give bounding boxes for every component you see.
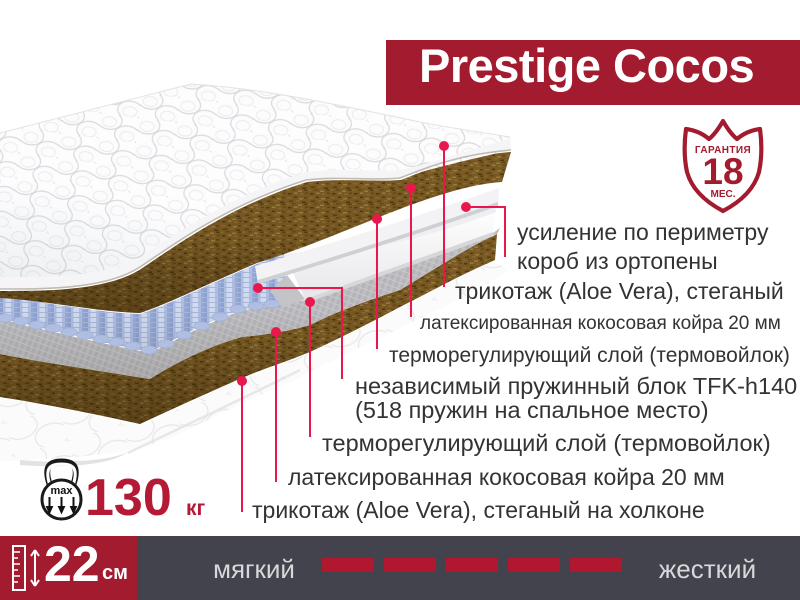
svg-text:МЕС.: МЕС. <box>711 189 736 200</box>
svg-text:18: 18 <box>702 151 743 192</box>
svg-text:max: max <box>50 485 73 497</box>
